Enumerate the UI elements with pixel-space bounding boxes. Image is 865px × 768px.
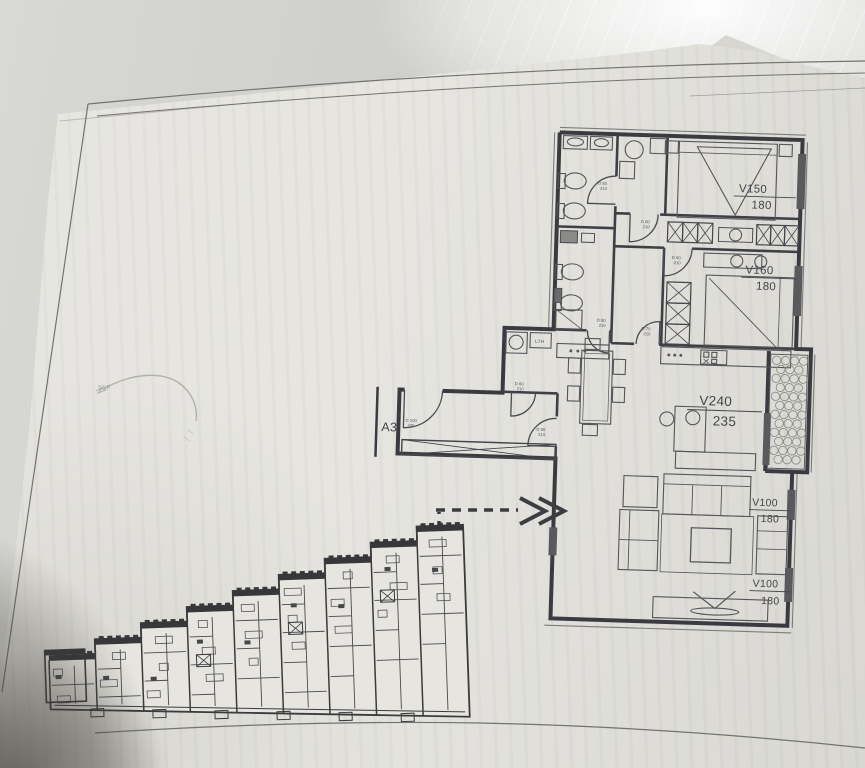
svg-text:V100: V100 — [752, 578, 778, 591]
overview-fixture — [151, 677, 157, 681]
overview-railing-tick — [99, 636, 104, 639]
overview-railing-tick — [392, 539, 397, 542]
terrace-tile — [777, 365, 786, 374]
window-living-upper — [787, 490, 796, 520]
bathroom1 — [557, 135, 613, 220]
overview-railing-tick — [153, 620, 158, 623]
overview-railing-tick — [216, 603, 221, 606]
overview-railing-tick — [237, 588, 242, 591]
tv-base — [691, 607, 739, 616]
overview-railing-tick — [420, 523, 425, 526]
overview-fixture — [291, 603, 297, 607]
overview-railing-tick — [191, 604, 196, 607]
duct — [560, 230, 577, 243]
tag-v240: V240 235 — [687, 393, 763, 430]
overview-fixture — [56, 675, 62, 679]
overview-railing-tick — [170, 619, 175, 622]
terrace-door — [762, 413, 771, 465]
overview-railing-tick — [337, 555, 342, 558]
wardrobe-cross — [784, 226, 799, 246]
overview-railing-tick — [116, 635, 121, 638]
terrace-tile — [772, 356, 781, 365]
terrace-tile — [779, 446, 788, 455]
photo-of-floor-plan: 55F — [0, 0, 865, 768]
door-tag: D 80 210 — [641, 219, 651, 229]
terrace-tile — [799, 375, 808, 384]
pencil-annotation: 55F — [96, 375, 196, 441]
terrace-tile — [784, 401, 793, 410]
terrace-tile — [784, 419, 793, 428]
terrace-tile — [783, 455, 792, 464]
terrace-tile — [792, 456, 801, 465]
sofa-icon — [663, 474, 751, 517]
terrace-tile — [788, 429, 797, 438]
overview-railing-tick — [354, 554, 359, 557]
terrace-tile — [774, 455, 783, 464]
overview-railing-tick — [283, 572, 288, 575]
terrace-tile — [775, 401, 784, 410]
overview-railing-tick — [254, 587, 259, 590]
laundry-label: LTH — [535, 339, 544, 344]
low-cabinet — [675, 451, 755, 471]
svg-text:180: 180 — [761, 595, 780, 608]
terrace-tile — [770, 446, 779, 455]
nightstand — [779, 144, 792, 156]
terrace-tile — [780, 410, 789, 419]
chair-icon — [613, 359, 625, 374]
overview-railing-tick — [145, 620, 150, 623]
chair-icon — [568, 358, 580, 373]
wardrobe-cross — [667, 222, 683, 242]
terrace-tile — [790, 375, 799, 384]
coffee-table — [690, 528, 731, 563]
svg-text:V160: V160 — [745, 264, 773, 277]
door-laundry — [511, 392, 536, 417]
frame-top-extra — [690, 88, 865, 96]
wardrobe-cross — [666, 303, 691, 325]
terrace-tile — [788, 447, 797, 456]
terrace-tile — [789, 393, 798, 402]
terrace-tile — [783, 437, 792, 446]
terrace-tile — [797, 429, 806, 438]
landing-wall — [375, 387, 377, 457]
overview-railing-tick — [262, 587, 267, 590]
niche — [560, 230, 594, 243]
terrace-tile — [785, 383, 794, 392]
kitchen-island — [674, 406, 706, 452]
cabinet-icon — [619, 161, 635, 178]
overview-railing-tick — [446, 522, 451, 525]
wardrobe-cross — [666, 282, 691, 304]
terrace-tile — [771, 410, 780, 419]
overview-fixture — [244, 640, 250, 644]
overview-outline — [45, 525, 470, 731]
pencil-arc — [103, 375, 196, 421]
wardrobe-cross — [770, 225, 785, 245]
svg-text:180: 180 — [760, 513, 779, 526]
overview-railing-tick — [199, 603, 204, 606]
door-tag: D 90 210 — [536, 427, 546, 437]
frame-bottom — [95, 722, 865, 748]
tag-v100-upper: V100 180 — [748, 497, 790, 526]
dressing-bench — [718, 227, 752, 242]
interior-walls — [501, 131, 803, 466]
door-tag: D 90 210 — [672, 255, 682, 265]
overview-railing-tick — [455, 522, 460, 525]
pencil-note-text: 55F — [98, 385, 111, 392]
overview-railing-tick — [291, 571, 296, 574]
terrace — [767, 354, 808, 469]
terrace-tile — [770, 428, 779, 437]
overview-railing-tick — [179, 619, 184, 622]
building-overview-plan — [41, 522, 470, 734]
floor-plan-drawing: 55F — [0, 0, 865, 768]
door-tag: D 80 210 — [598, 181, 608, 191]
terrace-tile — [771, 392, 780, 401]
chair-icon — [567, 386, 579, 401]
terrace-tile — [781, 356, 790, 365]
shelf — [581, 233, 594, 242]
overview-railing-tick — [363, 554, 368, 557]
utility-bath — [619, 137, 666, 179]
terrace-tile — [776, 383, 785, 392]
toilet-icon — [561, 264, 583, 281]
overview-railing-tick — [308, 571, 313, 574]
toilet-icon — [564, 173, 586, 190]
wardrobe-cross — [682, 222, 698, 242]
window-living-left — [548, 527, 557, 555]
overview-railing-tick — [374, 539, 379, 542]
armchair-icon — [623, 476, 658, 508]
washer-icon — [650, 138, 666, 153]
overview-railing-tick — [124, 635, 129, 638]
overview-railing-tick — [107, 636, 112, 639]
overview-railing-tick — [245, 587, 250, 590]
double-bed — [704, 275, 794, 348]
svg-text:180: 180 — [756, 281, 776, 294]
terrace-tile — [775, 419, 784, 428]
terrace-tile — [774, 437, 783, 446]
overview-railing-tick — [438, 523, 443, 526]
svg-text:V100: V100 — [752, 497, 778, 510]
dining-area — [554, 337, 626, 436]
overview-railing-tick — [383, 539, 388, 542]
svg-text:180: 180 — [751, 199, 771, 212]
overview-railing-tick — [317, 570, 322, 573]
wardrobe-cross — [665, 324, 690, 345]
bedroom1 — [663, 141, 792, 221]
frame-top-outer — [88, 61, 865, 104]
tag-v160: V160 180 — [741, 264, 797, 294]
svg-text:235: 235 — [713, 413, 737, 429]
overview-railing-tick — [79, 651, 84, 654]
overview-railing-tick — [409, 538, 414, 541]
terrace-tile — [797, 447, 806, 456]
overview-railing-tick — [346, 555, 351, 558]
terrace-tile — [786, 365, 795, 374]
terrace-tile — [772, 374, 781, 383]
overview-fixture — [338, 604, 344, 608]
frame-left — [2, 104, 88, 692]
overview-railing-tick — [162, 619, 167, 622]
overview-railing-tick — [429, 523, 434, 526]
lamp-icon — [731, 255, 743, 267]
bidet-icon — [560, 295, 582, 312]
terrace-tile — [780, 392, 789, 401]
terrace-tile — [798, 393, 807, 402]
terrace-tile — [781, 374, 790, 383]
chair-icon — [612, 387, 624, 402]
overview-fixture — [103, 676, 109, 680]
overview-fixture — [384, 567, 390, 571]
overview-railing-tick — [61, 652, 66, 655]
terrace-tile — [789, 411, 798, 420]
overview-railing-tick — [53, 652, 58, 655]
svg-text:V240: V240 — [699, 393, 732, 409]
overview-fixture — [197, 640, 203, 644]
terrace-tile — [798, 411, 807, 420]
svg-text:230: 230 — [407, 423, 415, 428]
overview-railing-tick — [70, 651, 75, 654]
overview-railing-tick — [208, 603, 213, 606]
svg-text:210: 210 — [643, 224, 651, 229]
terrace-tile — [793, 420, 802, 429]
round-basin-icon — [625, 140, 644, 159]
pencil-tick — [184, 430, 193, 441]
svg-text:V150: V150 — [739, 183, 767, 196]
terrace-tile — [795, 366, 804, 375]
terrace-tile — [793, 402, 802, 411]
window-bedroom2 — [793, 266, 803, 316]
laundry-room: LTH — [506, 332, 552, 354]
terrace-tile — [799, 357, 808, 366]
closet-strip — [718, 227, 752, 242]
chair-icon — [582, 424, 597, 435]
wardrobe-cross — [697, 223, 713, 243]
terrace-tile — [794, 384, 803, 393]
overview-fixture — [432, 568, 438, 572]
door-tag: D 70 210 — [641, 326, 651, 336]
svg-text:210: 210 — [600, 186, 608, 191]
tag-v150: V150 180 — [733, 183, 796, 213]
svg-text:210: 210 — [643, 331, 651, 336]
terrace-tile — [779, 428, 788, 437]
terrace-tile — [790, 357, 799, 366]
overview-railing-tick — [133, 635, 138, 638]
svg-text:210: 210 — [538, 432, 546, 437]
bidet-icon — [563, 203, 585, 220]
shaft — [554, 288, 561, 302]
bathroom2 — [554, 263, 584, 329]
terrace-tile — [792, 438, 801, 447]
svg-text:210: 210 — [517, 386, 525, 391]
frame-top-inner — [97, 73, 865, 116]
bar-stool-icon — [660, 412, 674, 426]
overview-railing-tick — [225, 603, 230, 606]
svg-text:210: 210 — [599, 323, 607, 328]
stool-icon — [729, 229, 741, 241]
overview-railing-tick — [87, 651, 92, 654]
door-tags: D 80 210 D 80 210 D 90 210 D 80 210 D 70 — [405, 175, 684, 441]
overview-railing-tick — [271, 586, 276, 589]
rug — [660, 514, 754, 575]
svg-text:210: 210 — [674, 260, 682, 265]
overview-railing-tick — [300, 571, 305, 574]
bar-stool-icon — [686, 411, 700, 425]
unit-label: A3 — [381, 420, 397, 434]
overview-railing-tick — [329, 555, 334, 558]
door-tag: D 60 210 — [515, 381, 525, 391]
wardrobe-cross — [756, 225, 771, 245]
door-tag: D 80 210 — [597, 318, 607, 328]
tv-stand — [653, 597, 769, 622]
arrow-head-chevrons — [520, 498, 564, 524]
window-bedroom1 — [796, 154, 806, 209]
overview-railing-tick — [400, 538, 405, 541]
